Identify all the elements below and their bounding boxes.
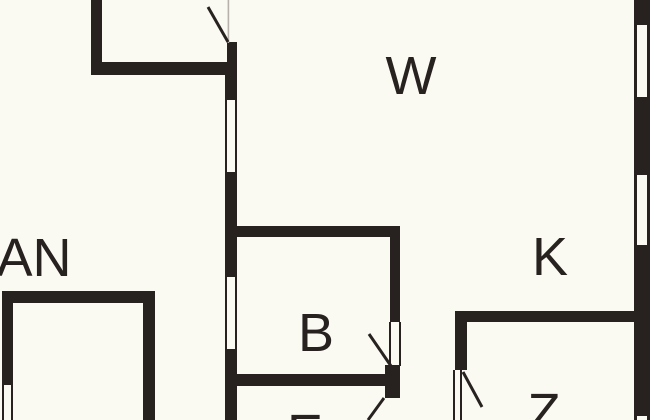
room-label-z: Z (528, 386, 561, 420)
room-label-b: B (298, 306, 334, 360)
room-label-e: E (287, 407, 323, 420)
room-label-an: AN (0, 231, 72, 285)
room-label-k: K (532, 230, 568, 284)
room-labels-layer: WANKBZE (0, 0, 650, 420)
floor-plan: WANKBZE (0, 0, 650, 420)
room-label-w: W (386, 49, 437, 103)
